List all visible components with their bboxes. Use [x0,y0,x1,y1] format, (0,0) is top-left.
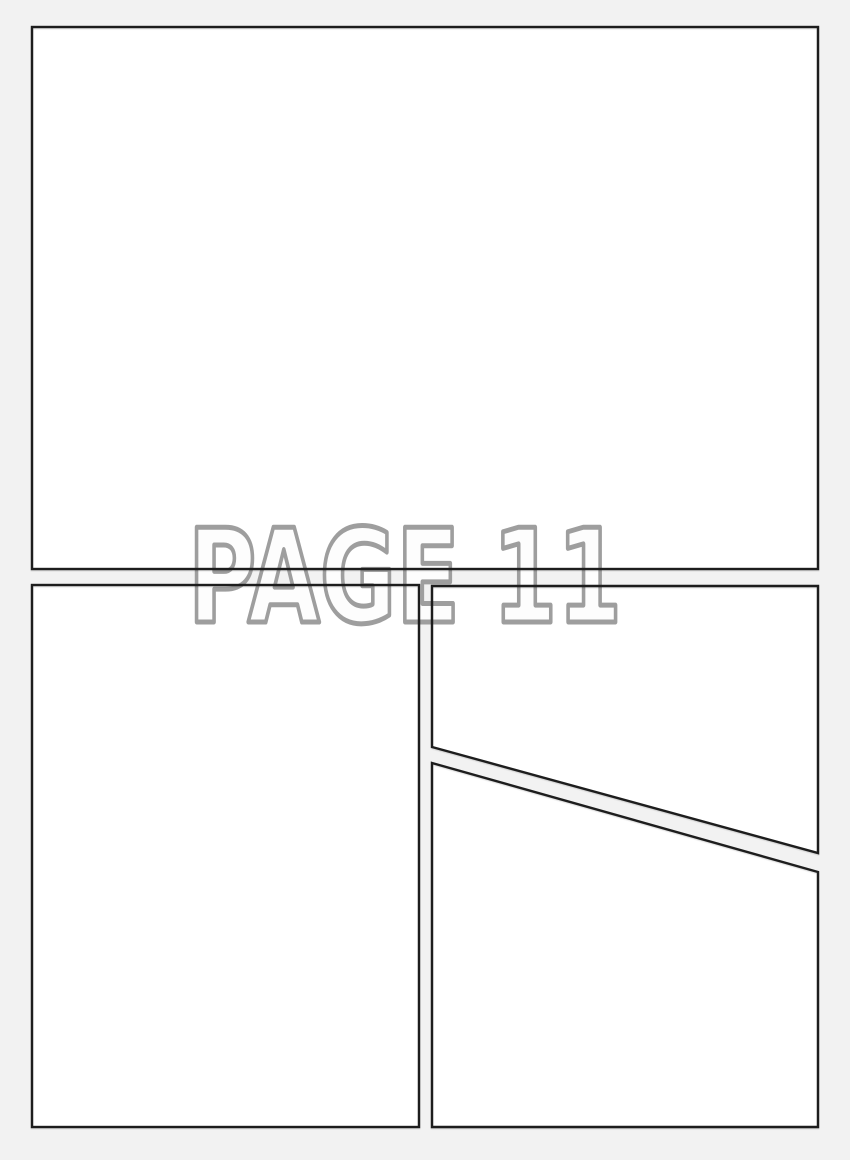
comic-page-template: PAGE 11 [0,0,850,1160]
page-canvas: PAGE 11 [0,0,850,1160]
panel-2-bottom-left-fill [32,585,419,1127]
panel-1-top-fill [32,27,818,569]
page-number-watermark: PAGE 11 [188,501,622,653]
